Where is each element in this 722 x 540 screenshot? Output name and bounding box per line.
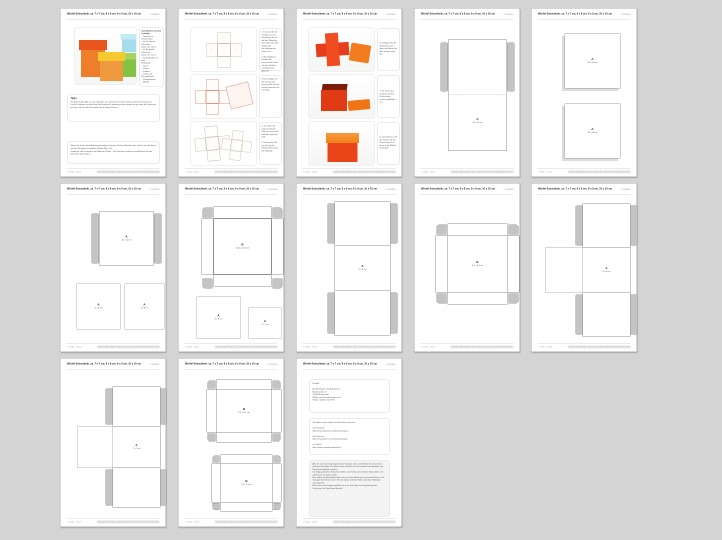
cross-arm-right xyxy=(507,236,520,293)
footer-url: www.bastelvorlagen-zum-ausdrucken.net/sc… xyxy=(333,345,396,349)
photo-finished-box xyxy=(309,122,375,166)
materials-list: – Tonkarton in Wunschfarbe – für die kle… xyxy=(142,35,162,84)
pages-canvas: Zum Basteln werden benötigt: – Tonkarton… xyxy=(0,0,722,540)
footer-rule xyxy=(421,344,514,345)
footer-url: www.bastelvorlagen-zum-ausdrucken.net/sc… xyxy=(568,345,631,349)
part-size: 9,4 x 9,4 cm xyxy=(472,264,483,267)
cross-arm-left xyxy=(436,236,449,293)
page-date: © 05/2010 xyxy=(149,13,159,16)
footer-copyright: © 2010 – 2013 xyxy=(185,521,199,524)
page-12[interactable]: B 8,4 x 8,4 cm B 7,4 x 7,4 cm Würfel-Sch… xyxy=(178,358,284,527)
figure-folded-parts xyxy=(191,122,257,166)
footer-copyright: © 2010 – 2013 xyxy=(185,171,199,174)
footer-copyright: © 2010 – 2013 xyxy=(303,171,317,174)
footer-rule xyxy=(421,169,514,170)
footer-copyright: © 2010 – 2013 xyxy=(67,521,81,524)
template-upper-panel xyxy=(448,40,507,95)
corner-tab xyxy=(213,456,220,463)
footer-url: www.bastelvorlagen-zum-ausdrucken.net/sc… xyxy=(215,345,278,349)
footer-rule xyxy=(538,344,631,345)
finished-body xyxy=(328,143,358,162)
footer-url: www.bastelvorlagen-zum-ausdrucken.net/sc… xyxy=(215,520,278,524)
step-text-3: 3. Die Vorlagen für die Deckel sind etwa… xyxy=(262,78,280,92)
page-title: Würfel-Schachteln, ca. 7 x 7 cm, 8 x 8 c… xyxy=(67,13,148,16)
page-title: Würfel-Schachteln, ca. 7 x 7 cm, 8 x 8 c… xyxy=(185,13,266,16)
orange-box-lid xyxy=(79,40,107,50)
note-text: Wenn Sie keine extra Anleitung benötigen… xyxy=(71,144,157,156)
part-label: B 10,4 x 10,4 cm xyxy=(236,244,249,250)
cover-photo xyxy=(75,28,137,85)
part-label: A 10 x 10 cm xyxy=(587,58,597,64)
part-label: A 9 x 9 cm xyxy=(359,265,367,271)
tilted-lid-square xyxy=(226,82,254,110)
page-9[interactable]: B 9,4 x 9,4 cm Würfel-Schachteln, ca. 7 … xyxy=(414,183,520,352)
mark-dot xyxy=(224,62,225,63)
page-date: © 05/2010 xyxy=(620,188,630,191)
template-part-top xyxy=(218,33,231,44)
contact-box: Kontakt: Bastelvorlagen zum Ausdrucken M… xyxy=(310,380,390,413)
part-size: 9 x 9 cm xyxy=(359,268,367,271)
page-title: Würfel-Schachteln, ca. 7 x 7 cm, 8 x 8 c… xyxy=(67,188,148,191)
page-title: Würfel-Schachteln, ca. 7 x 7 cm, 8 x 8 c… xyxy=(538,188,619,191)
cross-template-red xyxy=(195,80,230,115)
footer-copyright: © 2010 – 2013 xyxy=(67,171,81,174)
footer-rule xyxy=(538,169,631,170)
strip-square-bottom xyxy=(113,468,161,508)
step-box-1-2: 1. Drucken Sie die Vorlage aus und übert… xyxy=(260,29,282,71)
glue-flap xyxy=(160,470,167,506)
page-title: Würfel-Schachteln, ca. 7 x 7 cm, 8 x 8 c… xyxy=(67,363,148,366)
glue-flap-left xyxy=(92,214,100,264)
step-box-4-5: 4. So sehen die zugeschnittenen Teile au… xyxy=(260,123,282,165)
part-label: A 8 x 8 cm xyxy=(215,315,223,321)
page-title: Würfel-Schachteln, ca. 7 x 7 cm, 8 x 8 c… xyxy=(421,188,502,191)
page-2[interactable]: 1. Drucken Sie die Vorlage aus und übert… xyxy=(178,8,284,177)
footer-rule xyxy=(185,169,278,170)
template-part-left xyxy=(194,138,206,152)
cross-arm-bottom xyxy=(221,502,273,512)
red-box-body xyxy=(321,90,347,111)
footer-rule xyxy=(185,519,278,520)
corner-tab xyxy=(437,225,447,235)
cross-arm-top xyxy=(214,207,272,219)
header-rule xyxy=(67,369,160,370)
yellow-box-body xyxy=(100,59,123,81)
corner-tab xyxy=(208,381,216,389)
cyan-box-lid xyxy=(121,34,137,40)
orange-lid-piece xyxy=(349,43,372,64)
part-label: B 8,4 x 8,4 cm xyxy=(238,408,249,414)
corner-tab xyxy=(437,294,447,304)
cross-arm-right xyxy=(272,219,284,275)
corner-tab xyxy=(273,208,283,218)
footer-rule xyxy=(67,519,160,520)
part-label: A 7 x 7 cm xyxy=(133,444,141,450)
page-7[interactable]: B 10,4 x 10,4 cm A 8 x 8 cm A 7 x 7 cm W… xyxy=(178,183,284,352)
header-rule xyxy=(303,19,396,20)
footer-url: www.bastelvorlagen-zum-ausdrucken.net/sc… xyxy=(451,170,514,174)
step-box-3: 3. Die Vorlagen für die Deckel sind etwa… xyxy=(260,76,282,118)
figure-lid-template xyxy=(191,75,257,119)
page-title: Würfel-Schachteln, ca. 7 x 7 cm, 8 x 8 c… xyxy=(303,363,384,366)
glue-flap xyxy=(630,295,638,335)
footer-rule xyxy=(303,519,396,520)
step-text-6: 6. Schlagen Sie die Seitenteile nach obe… xyxy=(380,42,398,56)
footer-rule xyxy=(67,169,160,170)
mark-dot xyxy=(236,50,237,51)
part-size: 9 x 9 cm xyxy=(141,307,149,310)
part-size: 7 x 7 cm xyxy=(261,323,269,326)
template-part-center xyxy=(206,91,219,104)
header-rule xyxy=(421,19,514,20)
corner-tab xyxy=(203,208,213,218)
tips-box: Tipps: Für jede Größe gibt es zwei Vorla… xyxy=(68,95,160,122)
contact-text: Kontakt: Bastelvorlagen zum Ausdrucken M… xyxy=(313,382,387,401)
header-rule xyxy=(185,369,278,370)
corner-tab xyxy=(273,279,283,289)
header-rule xyxy=(67,19,160,20)
cross-arm-left xyxy=(202,219,214,275)
page-5[interactable]: A 10 x 10 cm A 10 x 10 cm Würfel-Schacht… xyxy=(531,8,637,177)
materials-title: Zum Basteln werden benötigt: xyxy=(142,30,162,35)
template-part-left xyxy=(207,44,218,57)
links-box: Sie finden meine Seiten auch bei diesen … xyxy=(310,419,390,455)
mark-dot xyxy=(211,50,212,51)
cross-arm-right xyxy=(271,390,282,433)
header-rule xyxy=(185,19,278,20)
footer-copyright: © 2010 – 2013 xyxy=(303,346,317,349)
part-size: 9 x 9 cm xyxy=(95,307,103,310)
figure-cut-template xyxy=(191,28,257,72)
header-rule xyxy=(538,19,631,20)
page-date: © 05/2010 xyxy=(385,363,395,366)
part-size: 10 x 10 cm xyxy=(587,61,597,64)
page-8[interactable]: A 9 x 9 cm Würfel-Schachteln, ca. 7 x 7 … xyxy=(296,183,402,352)
part-label: B 7,4 x 7,4 cm xyxy=(241,480,252,486)
template-part-top xyxy=(232,130,244,141)
materials-box: Zum Basteln werden benötigt: – Tonkarton… xyxy=(140,28,164,87)
corner-tab xyxy=(274,503,281,510)
part-label: A 10 x 10 cm xyxy=(587,128,597,134)
footer-url: www.bastelvorlagen-zum-ausdrucken.net/sc… xyxy=(568,170,631,174)
orange-lid-flat xyxy=(348,99,371,111)
footer-url: www.bastelvorlagen-zum-ausdrucken.net/sc… xyxy=(97,520,160,524)
step-box-7: 7. So sehen das Unterteil und der Deckel… xyxy=(378,76,400,118)
page-11[interactable]: A 7 x 7 cm Würfel-Schachteln, ca. 7 x 7 … xyxy=(60,358,166,527)
corner-tab xyxy=(273,381,281,389)
page-title: Würfel-Schachteln, ca. 7 x 7 cm, 8 x 8 c… xyxy=(303,188,384,191)
template-part-right xyxy=(241,141,252,153)
corner-tab xyxy=(509,294,519,304)
template-part-bottom xyxy=(207,149,221,161)
footer-copyright: © 2010 – 2013 xyxy=(185,346,199,349)
footer-rule xyxy=(303,344,396,345)
footer-copyright: © 2010 – 2013 xyxy=(538,346,552,349)
footer-copyright: © 2010 – 2013 xyxy=(538,171,552,174)
part-size: 8 x 8 cm xyxy=(603,270,611,273)
footer-copyright: © 2010 – 2013 xyxy=(67,346,81,349)
note-box: Wenn Sie keine extra Anleitung benötigen… xyxy=(68,142,160,164)
page-date: © 05/2010 xyxy=(385,13,395,16)
footer-copyright: © 2010 – 2013 xyxy=(421,346,435,349)
cross-arm-right xyxy=(272,464,282,503)
cross-arm-bottom xyxy=(214,275,272,287)
corner-tab xyxy=(203,279,213,289)
glue-flap-right xyxy=(154,214,162,264)
step-text-7: 7. So sehen das Unterteil und der Deckel… xyxy=(380,90,398,104)
links-text: Sie finden meine Seiten auch bei diesen … xyxy=(313,421,387,449)
glue-flap xyxy=(630,206,638,246)
footer-url: www.bastelvorlagen-zum-ausdrucken.net/sc… xyxy=(215,170,278,174)
part-size: 8,4 x 8,4 cm xyxy=(238,411,249,414)
footer-rule xyxy=(185,344,278,345)
glue-flap xyxy=(390,204,398,244)
cross-template-drawing xyxy=(207,33,242,68)
template-part-bottom xyxy=(206,104,219,115)
template-part-left xyxy=(195,91,206,104)
footer-url: www.bastelvorlagen-zum-ausdrucken.net/sc… xyxy=(451,345,514,349)
page-title: Würfel-Schachteln, ca. 7 x 7 cm, 8 x 8 c… xyxy=(303,13,384,16)
part-size: 10 x 10 cm xyxy=(472,121,482,124)
template-part-left xyxy=(221,138,232,150)
footer-url: www.bastelvorlagen-zum-ausdrucken.net/sc… xyxy=(97,170,160,174)
page-date: © 05/2010 xyxy=(149,188,159,191)
tips-title: Tipps: xyxy=(71,97,157,100)
red-cross-vertical xyxy=(325,33,340,67)
step-box-6: 6. Schlagen Sie die Seitenteile nach obe… xyxy=(378,29,400,71)
page-date: © 05/2010 xyxy=(385,188,395,191)
header-rule xyxy=(303,369,396,370)
cross-arm-bottom xyxy=(448,292,508,305)
page-title: Würfel-Schachteln, ca. 7 x 7 cm, 8 x 8 c… xyxy=(185,363,266,366)
part-label: A 10 x 10 cm xyxy=(121,236,131,242)
corner-tab xyxy=(509,225,519,235)
page-date: © 05/2010 xyxy=(503,13,513,16)
cross-arm-top xyxy=(448,224,508,237)
footer-url: www.bastelvorlagen-zum-ausdrucken.net/sc… xyxy=(333,170,396,174)
side-square xyxy=(546,247,584,293)
page-title: Würfel-Schachteln, ca. 7 x 7 cm, 8 x 8 c… xyxy=(538,13,619,16)
header-rule xyxy=(538,194,631,195)
page-date: © 05/2010 xyxy=(149,363,159,366)
side-square xyxy=(78,426,114,468)
glue-flap-right xyxy=(507,43,515,92)
part-size: 8 x 8 cm xyxy=(215,318,223,321)
yellow-box-lid xyxy=(98,52,125,61)
part-label: A 7 x 7 cm xyxy=(261,320,269,326)
glue-flap xyxy=(160,389,167,425)
step-text-1-2: 1. Drucken Sie die Vorlage aus und übert… xyxy=(262,31,280,73)
footer-rule xyxy=(67,344,160,345)
corner-tab xyxy=(273,434,281,442)
cross-arm-left xyxy=(207,390,218,433)
page-10[interactable]: A 8 x 8 cm Würfel-Schachteln, ca. 7 x 7 … xyxy=(531,183,637,352)
footer-copyright: © 2010 – 2013 xyxy=(303,521,317,524)
tips-text: Für jede Größe gibt es zwei Vorlagen: ei… xyxy=(71,100,157,109)
header-rule xyxy=(67,194,160,195)
step-text-8: 8. Zum Schluss wird der Deckel auf das U… xyxy=(380,136,398,150)
part-size: 10 x 10 cm xyxy=(121,239,131,242)
terms-box: Alle hier zum Download angebotenen Vorla… xyxy=(310,461,390,517)
glue-flap-left xyxy=(441,43,449,92)
strip-square-bottom xyxy=(335,291,391,336)
part-label: A 9 x 9 cm xyxy=(95,304,103,310)
terms-text: Alle hier zum Download angebotenen Vorla… xyxy=(313,463,387,490)
page-date: © 05/2010 xyxy=(267,188,277,191)
step-box-8: 8. Zum Schluss wird der Deckel auf das U… xyxy=(378,123,400,165)
corner-tab xyxy=(208,434,216,442)
page-6[interactable]: A 10 x 10 cm A 9 x 9 cm A 9 x 9 cm Würfe… xyxy=(60,183,166,352)
part-label: A 8 x 8 cm xyxy=(603,267,611,273)
strip-square-top xyxy=(583,204,631,248)
strip-square-top xyxy=(335,202,391,246)
part-size: 10 x 10 cm xyxy=(587,131,597,134)
corner-tab xyxy=(213,503,220,510)
page-date: © 05/2010 xyxy=(503,188,513,191)
strip-square-top xyxy=(113,387,161,427)
page-date: © 05/2010 xyxy=(620,13,630,16)
cross-arm-bottom xyxy=(217,432,272,443)
cross-template-b xyxy=(220,129,253,162)
page-title: Würfel-Schachteln, ca. 7 x 7 cm, 8 x 8 c… xyxy=(185,188,266,191)
photo-open-box xyxy=(309,75,375,119)
header-rule xyxy=(303,194,396,195)
part-label: A 9 x 9 cm xyxy=(141,304,149,310)
finished-lid xyxy=(326,133,359,143)
part-label: A 10 x 10 cm xyxy=(472,118,482,124)
header-rule xyxy=(421,194,514,195)
glue-flap xyxy=(390,293,398,334)
part-size: 10,4 x 10,4 cm xyxy=(236,247,249,250)
part-size: 7,4 x 7,4 cm xyxy=(241,483,252,486)
page-13[interactable]: Kontakt: Bastelvorlagen zum Ausdrucken M… xyxy=(296,358,402,527)
footer-url: www.bastelvorlagen-zum-ausdrucken.net/sc… xyxy=(333,520,396,524)
page-1[interactable]: Zum Basteln werden benötigt: – Tonkarton… xyxy=(60,8,166,177)
page-3[interactable]: 6. Schlagen Sie die Seitenteile nach obe… xyxy=(296,8,402,177)
page-4[interactable]: A 10 x 10 cm Würfel-Schachteln, ca. 7 x … xyxy=(414,8,520,177)
mark-dot xyxy=(224,50,225,51)
page-title: Würfel-Schachteln, ca. 7 x 7 cm, 8 x 8 c… xyxy=(421,13,502,16)
footer-rule xyxy=(303,169,396,170)
photo-cut-pieces xyxy=(309,28,375,72)
header-rule xyxy=(185,194,278,195)
page-date: © 05/2010 xyxy=(267,363,277,366)
strip-square-bottom xyxy=(583,293,631,337)
footer-url: www.bastelvorlagen-zum-ausdrucken.net/sc… xyxy=(97,345,160,349)
template-part-top xyxy=(204,125,218,137)
page-date: © 05/2010 xyxy=(267,13,277,16)
footer-copyright: © 2010 – 2013 xyxy=(421,171,435,174)
corner-tab xyxy=(274,456,281,463)
mark-dot xyxy=(224,37,225,38)
part-size: 7 x 7 cm xyxy=(133,447,141,450)
template-part-bottom xyxy=(229,150,241,161)
template-part-top xyxy=(206,80,219,91)
step-text-4-5: 4. So sehen die zugeschnittenen Teile au… xyxy=(262,125,280,153)
part-label: B 9,4 x 9,4 cm xyxy=(472,261,483,267)
cross-arm-top xyxy=(217,380,272,391)
